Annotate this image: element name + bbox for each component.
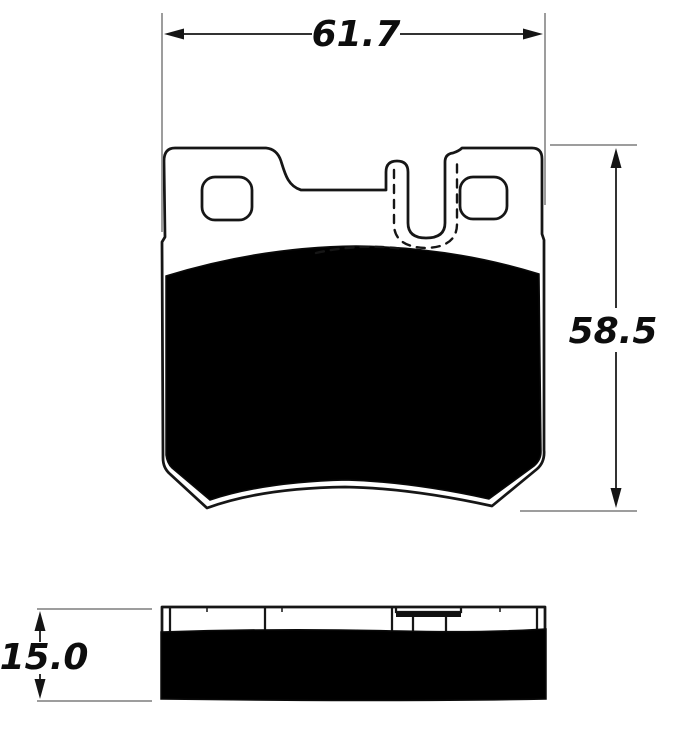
right-mounting-hole: [460, 177, 507, 219]
width-dim-label: 61.7: [312, 14, 401, 55]
thickness-arrow-bottom: [35, 679, 46, 699]
left-mounting-hole: [202, 177, 252, 220]
drawing-canvas: 61.7 58.5 15.0: [0, 0, 676, 744]
height-dim-label: 58.5: [569, 311, 658, 352]
thickness-dim-label: 15.0: [0, 637, 88, 678]
front-view: [162, 148, 544, 508]
brake-pad-drawing: 61.7 58.5 15.0: [0, 0, 676, 744]
friction-material-front: [166, 246, 541, 500]
clip-bar: [396, 612, 461, 617]
height-arrow-bottom: [611, 488, 622, 508]
height-arrow-top: [611, 148, 622, 168]
side-friction-material: [161, 629, 546, 701]
side-view: [161, 607, 546, 701]
thickness-dimension: 15.0: [0, 609, 152, 701]
width-arrow-left: [164, 29, 184, 40]
width-arrow-right: [523, 29, 543, 40]
thickness-arrow-top: [35, 611, 46, 631]
